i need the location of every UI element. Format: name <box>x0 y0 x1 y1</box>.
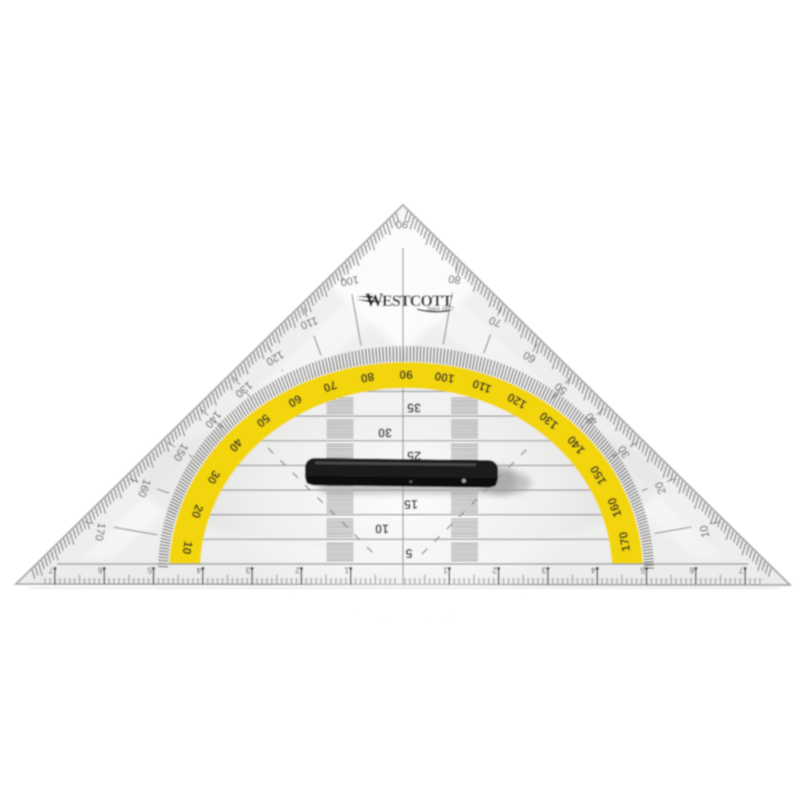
svg-text:7: 7 <box>738 565 743 574</box>
svg-text:4: 4 <box>196 565 201 574</box>
svg-text:10: 10 <box>179 540 195 556</box>
svg-text:35: 35 <box>407 401 421 415</box>
svg-text:15: 15 <box>404 497 418 511</box>
svg-text:3: 3 <box>541 565 546 574</box>
svg-text:30: 30 <box>378 426 392 440</box>
svg-text:80: 80 <box>448 272 462 286</box>
svg-text:6: 6 <box>689 565 694 574</box>
svg-text:7: 7 <box>48 565 53 574</box>
svg-text:10: 10 <box>375 522 389 536</box>
svg-text:90: 90 <box>399 368 413 382</box>
svg-text:5: 5 <box>147 565 152 574</box>
svg-text:5: 5 <box>405 546 412 560</box>
svg-text:4: 4 <box>590 565 595 574</box>
svg-text:3: 3 <box>245 565 250 574</box>
svg-text:80: 80 <box>359 369 375 385</box>
svg-text:1: 1 <box>344 565 349 574</box>
svg-text:6: 6 <box>97 565 102 574</box>
svg-text:2: 2 <box>492 565 497 574</box>
svg-text:10: 10 <box>698 524 712 538</box>
svg-text:5: 5 <box>640 565 645 574</box>
svg-text:2: 2 <box>295 565 300 574</box>
svg-text:1: 1 <box>443 565 448 574</box>
